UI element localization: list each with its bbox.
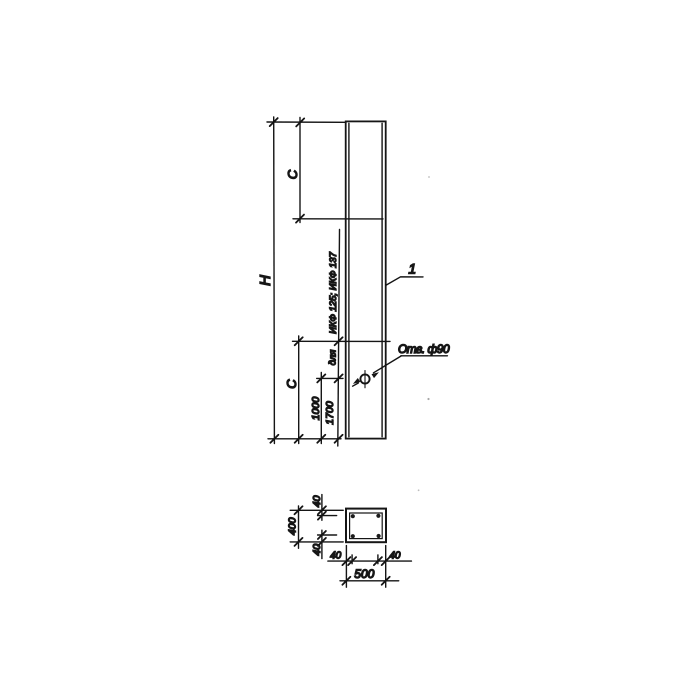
svg-text:40: 40	[330, 550, 342, 561]
svg-text:40: 40	[389, 551, 401, 562]
svg-text:1000: 1000	[310, 397, 322, 421]
svg-text:H: H	[257, 275, 274, 286]
svg-text:C: C	[285, 169, 300, 179]
svg-text:1700: 1700	[324, 401, 336, 425]
svg-text:Отв. ф90: Отв. ф90	[398, 342, 450, 356]
svg-text:ИКФ 125; ИКФ 137: ИКФ 125; ИКФ 137	[328, 251, 339, 333]
svg-text:40: 40	[311, 544, 323, 556]
svg-text:1: 1	[408, 261, 416, 277]
svg-text:40: 40	[311, 495, 323, 507]
svg-text:для: для	[328, 350, 339, 366]
svg-text:400: 400	[287, 517, 299, 535]
svg-text:500: 500	[354, 567, 374, 581]
svg-text:C: C	[284, 379, 299, 389]
